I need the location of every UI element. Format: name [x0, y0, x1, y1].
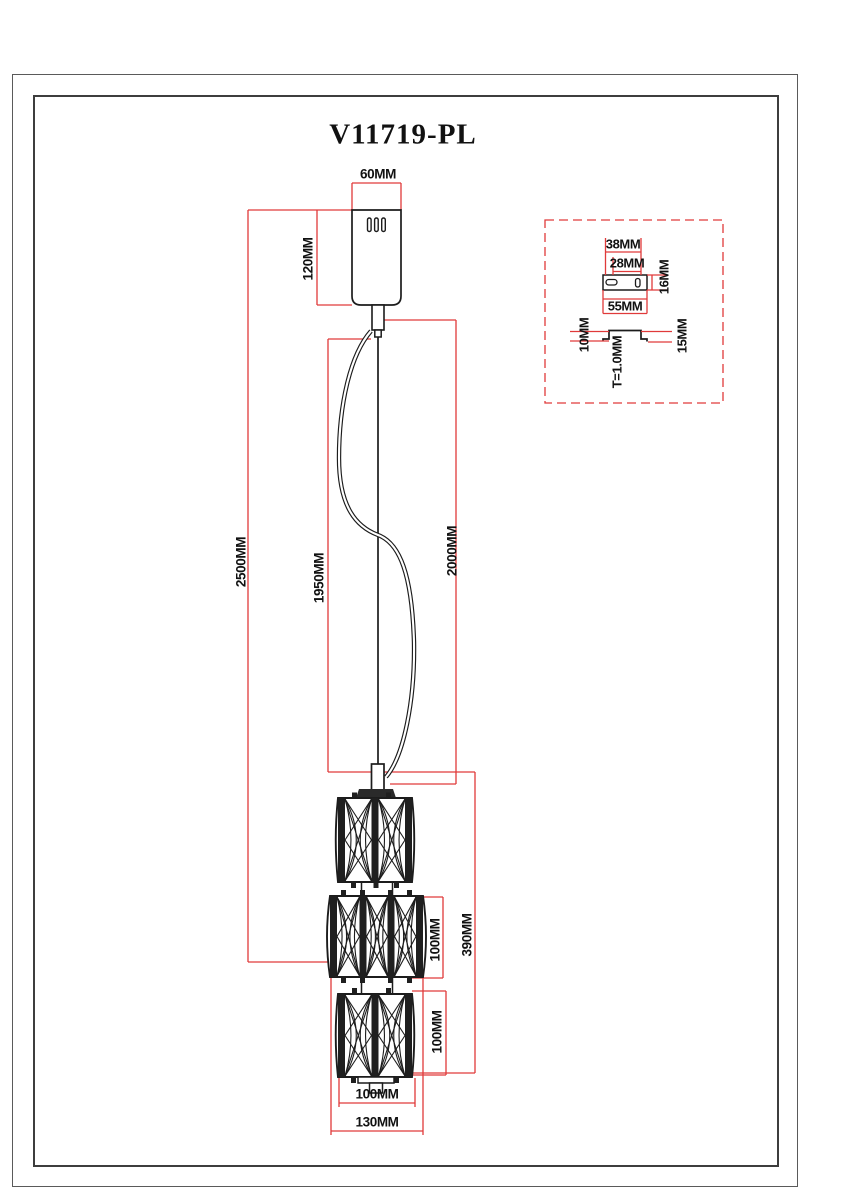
- dim-label-shade2-height: 100MM: [428, 918, 443, 961]
- dim-label-shade3-height: 100MM: [430, 1010, 445, 1053]
- inset-label-slot-inner-span: 28MM: [610, 256, 645, 271]
- inset-label-plate-depth: 16MM: [657, 260, 672, 295]
- power-cable: [339, 331, 414, 777]
- cord-grip: [372, 305, 384, 330]
- crystal-shade-2: [327, 890, 426, 983]
- canopy-vent-slots: [368, 218, 386, 232]
- model-number: V11719-PL: [329, 119, 477, 152]
- inset-label-thickness: T=1.0MM: [610, 336, 625, 388]
- dim-label-max-width: 130MM: [355, 1115, 398, 1130]
- dim-label-cable-length: 1950MM: [312, 553, 327, 603]
- pendant-fixture: [327, 210, 426, 1093]
- plate-keyhole-slot: [606, 280, 617, 286]
- crystal-shade-1: [336, 789, 415, 888]
- dim-label-shade-stack-height: 390MM: [460, 913, 475, 956]
- dim-label-total-drop: 2500MM: [234, 537, 249, 587]
- inset-label-plate-width: 55MM: [608, 299, 643, 314]
- drawing-canvas: [0, 0, 848, 1200]
- crystal-shade-3: [336, 988, 415, 1083]
- plate-screw-slot: [636, 279, 641, 288]
- technical-drawing-page: V11719-PL 60MM 120MM 2500MM 1950MM 2000M…: [0, 0, 848, 1200]
- inset-label-slot-span: 38MM: [606, 237, 641, 252]
- inset-label-left-step: 10MM: [577, 318, 592, 353]
- inset-label-right-step: 15MM: [675, 319, 690, 354]
- dim-label-wire-length: 2000MM: [445, 526, 460, 576]
- dim-label-shade-width: 100MM: [355, 1087, 398, 1102]
- dim-label-canopy-height: 120MM: [301, 237, 316, 280]
- cord-grip-nub: [375, 330, 381, 337]
- dim-label-canopy-width: 60MM: [360, 167, 396, 182]
